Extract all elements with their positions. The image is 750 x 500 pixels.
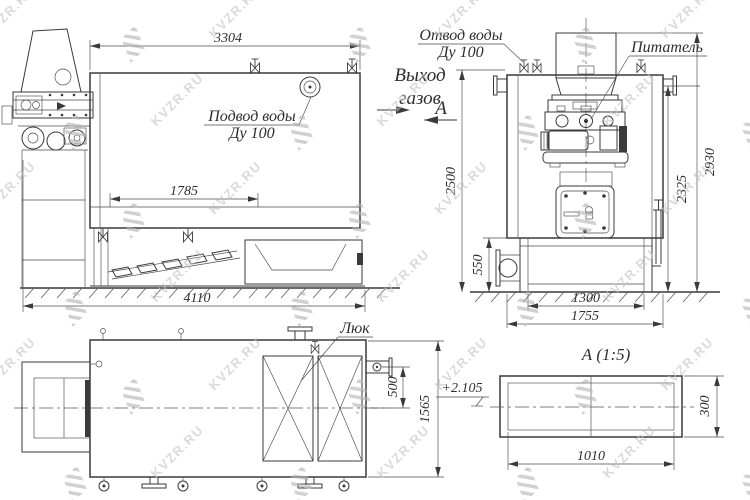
dim-duct-height: 300 [698,396,713,418]
drain-valve-icon [184,228,193,242]
side-view: 3304 1785 4110 Подвод воды Ду 100 Выход … [2,29,457,312]
boiler-body-side [90,73,360,228]
valve-icon [533,60,541,73]
hatch-panels [263,356,362,461]
feeder-front [541,95,628,167]
safety-valve-icon [348,59,357,73]
dim-body-width: 1755 [571,309,599,324]
dim-height-body: 2325 [675,175,690,203]
safety-valve-icon [251,59,260,73]
feeder-plan [22,362,90,452]
boiler-body-plan [90,340,366,477]
drain-pipe [652,200,664,266]
front-view: 1300 1755 2500 550 2325 2930 Отвод вод [418,18,720,328]
dim-duct-width: 1010 [577,449,605,464]
water-outlet-label-line2: Ду 100 [436,44,483,61]
valve-icon [637,60,645,73]
dim-ash-box-height: 550 [471,255,486,276]
boiler-technical-drawing: 3304 1785 4110 Подвод воды Ду 100 Выход … [0,0,750,500]
dim-length-top: 3304 [213,31,242,46]
dim-grate-length: 1785 [170,184,198,199]
valve-icon [520,60,528,73]
water-inlet-label-line2: Ду 100 [227,125,274,142]
dim-height-overall: 2930 [703,148,718,176]
section-view: А (1:5) 1010 300 [490,345,724,470]
drain-valve-icon [99,228,108,242]
dim-width-overall: 1565 [418,395,433,423]
section-dimensions: 1010 300 [508,376,724,470]
fuel-hopper-side [21,29,81,92]
elevation-mark: +2.105 [442,381,483,396]
boiler-body-front [507,75,663,238]
inclined-grate [108,250,240,279]
anchor-bolts [99,477,349,491]
section-title: А (1:5) [581,345,631,364]
side-labels: Подвод воды Ду 100 Выход газов А [204,65,457,142]
dim-length-overall: 4110 [184,291,211,306]
furnace-door [556,186,614,238]
dim-base-width: 1300 [572,291,600,306]
feeder-label: Питатель [630,39,703,56]
plan-view: 500 1565 +2.105 Люк [14,320,489,491]
drawing-canvas: KVZR.RUKVZR.RUKVZR.RUKVZR.RUKVZR.RUKVZR.… [0,0,750,500]
hatch-label: Люк [339,320,370,337]
gas-outlet-label-line1: Выход [394,65,445,86]
feeder-drive-side [18,126,90,150]
water-outlet-label-line1: Отвод воды [419,27,502,44]
valve-icon [311,341,319,353]
dim-gas-duct-offset: 500 [386,377,401,398]
dim-height-water-outlet: 2500 [444,167,459,195]
view-direction-label: А [433,98,447,119]
water-inlet-label-line1: Подвод воды [207,108,296,125]
view-direction-arrow-icon [424,116,438,124]
